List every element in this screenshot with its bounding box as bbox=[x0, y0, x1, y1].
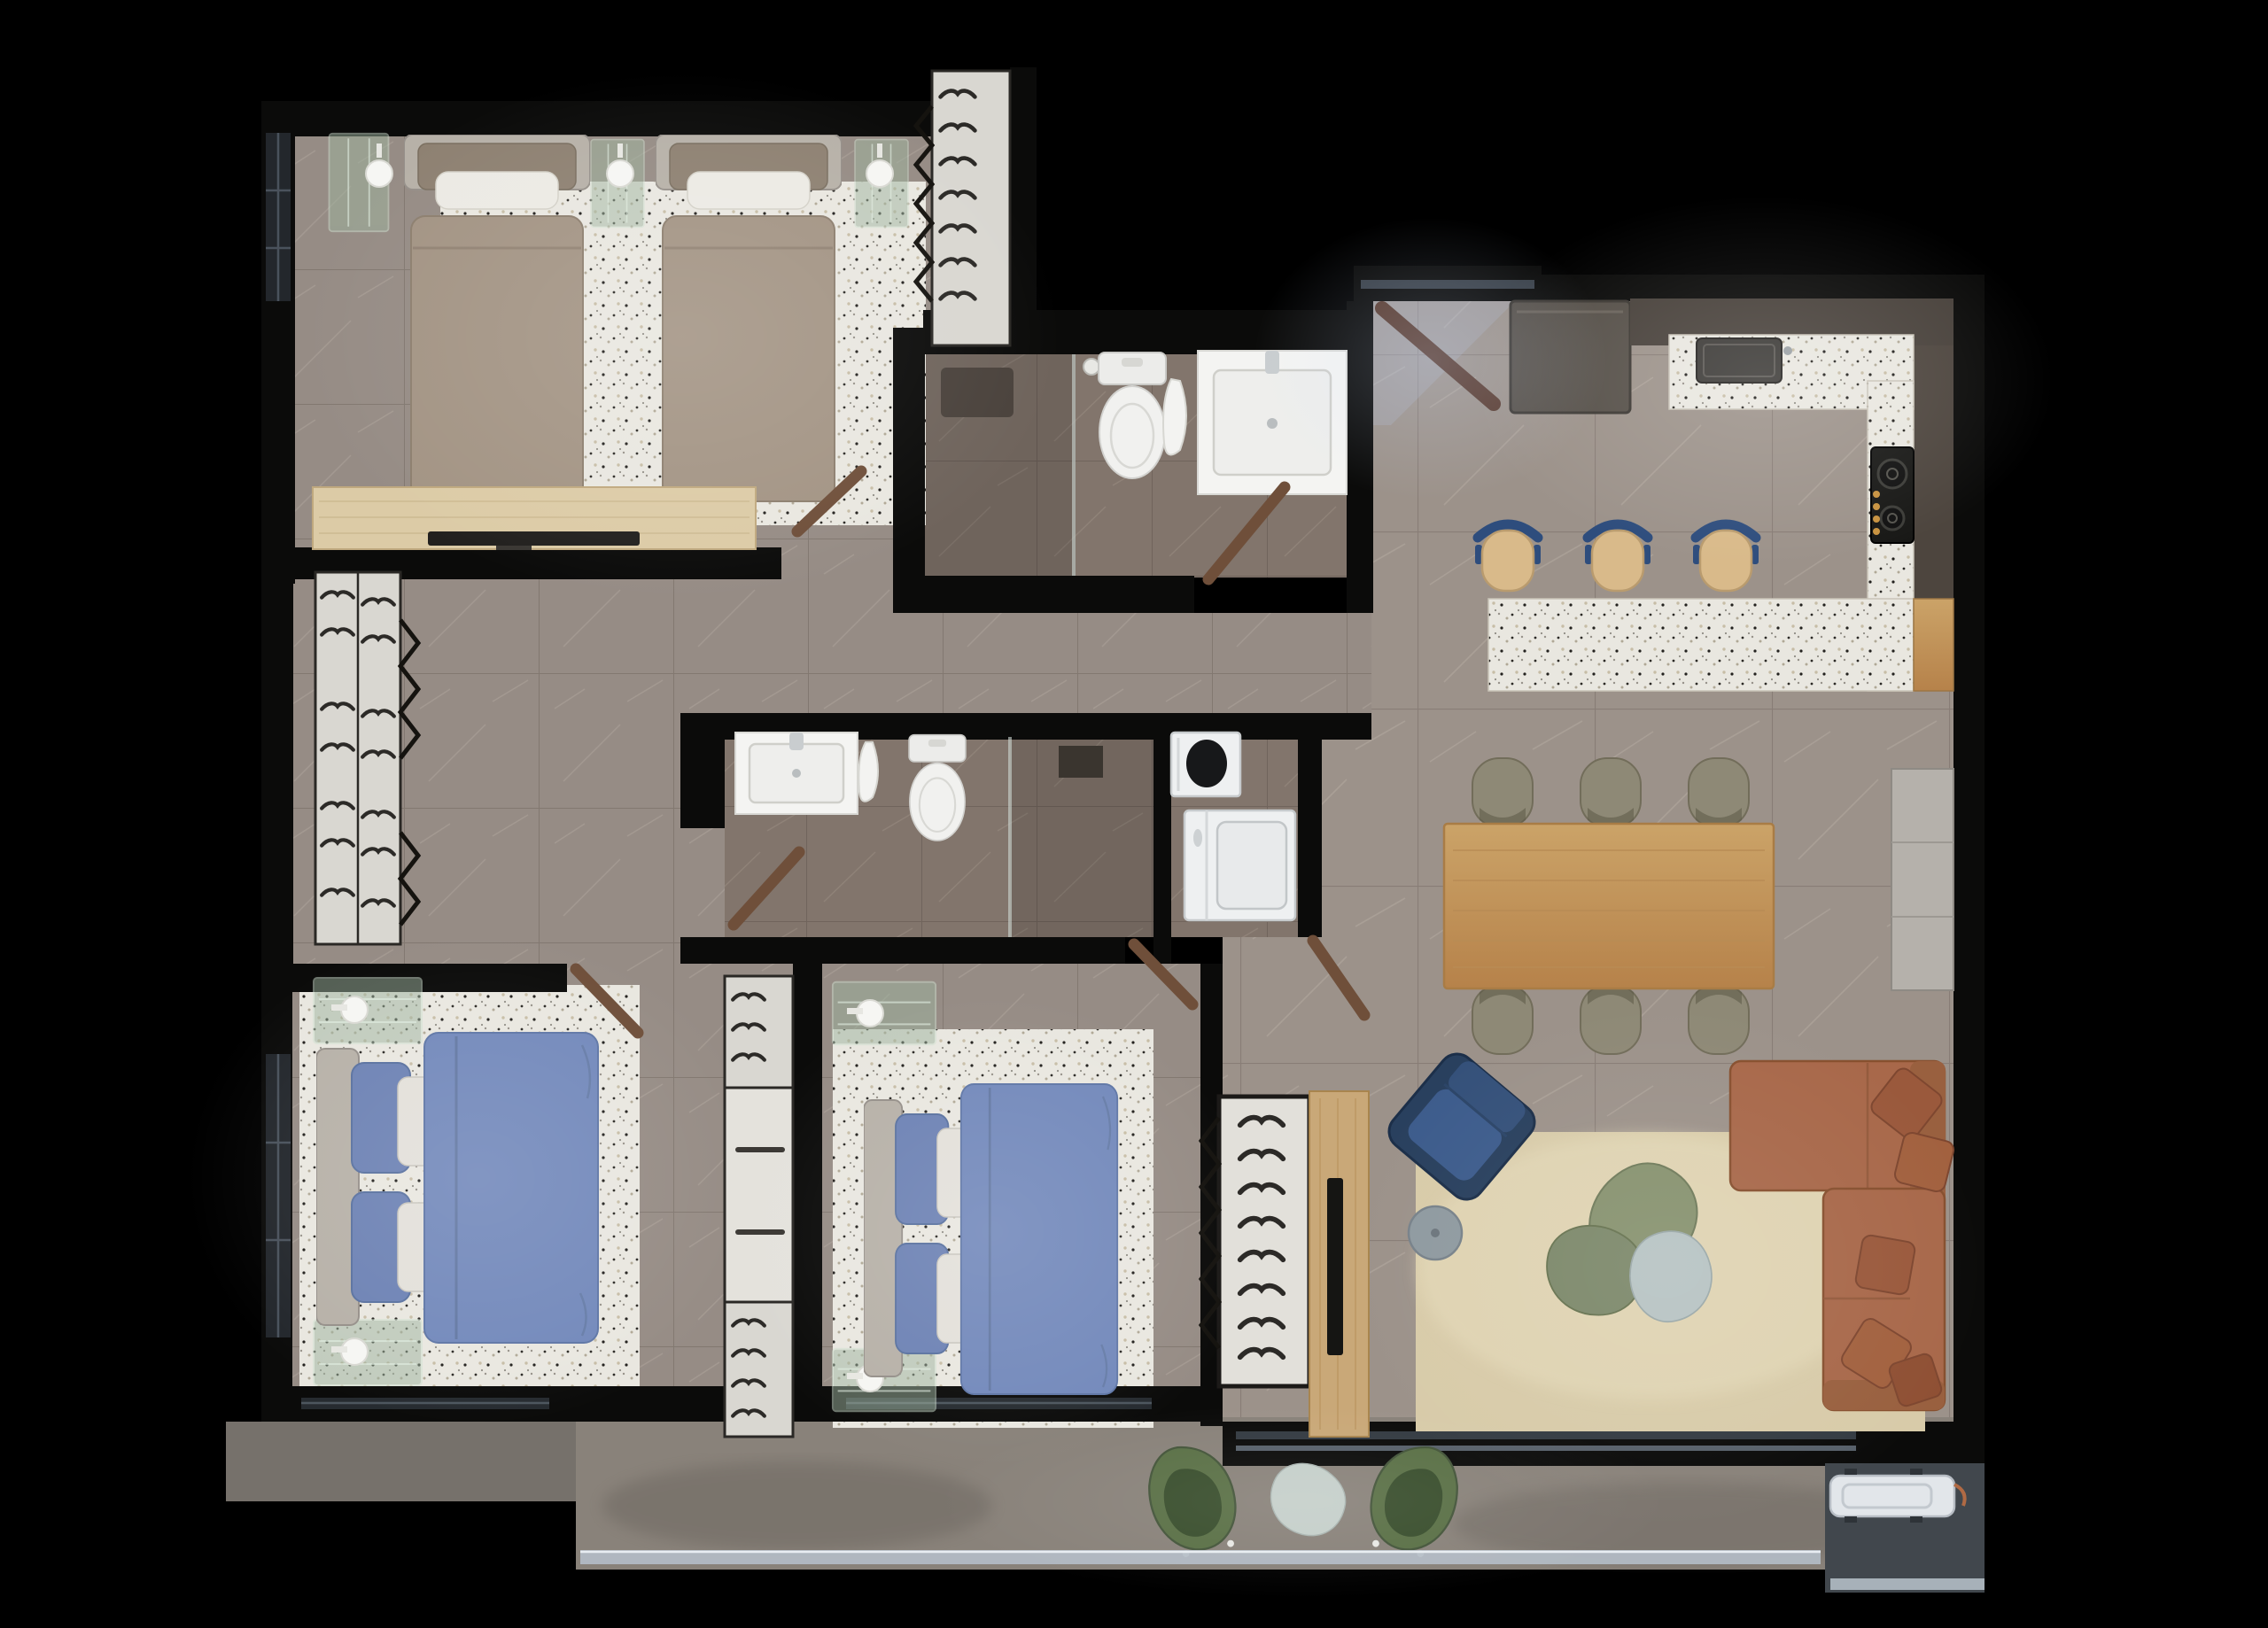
shower-drain bbox=[1084, 359, 1099, 375]
toilet-brush-holder bbox=[1163, 379, 1186, 454]
sideboard bbox=[1891, 769, 1953, 990]
wall-laundry-right bbox=[1298, 737, 1322, 937]
ledge-glass-railing bbox=[1830, 1578, 1984, 1590]
bar-stool bbox=[1475, 524, 1541, 591]
dining-chair bbox=[1472, 758, 1533, 827]
floor-plan-render bbox=[0, 0, 2268, 1628]
washer-handle bbox=[1193, 829, 1202, 847]
washer-lid bbox=[1217, 822, 1286, 909]
floor-plan-stage bbox=[0, 0, 2268, 1628]
counter-peninsula bbox=[1488, 599, 1914, 691]
wall-bathroom-2-left bbox=[680, 713, 725, 828]
vanity-sink bbox=[735, 733, 858, 814]
washing-machine-top-load bbox=[1171, 733, 1240, 796]
wall-hall-left bbox=[261, 576, 293, 979]
washing-machine-front-load bbox=[1184, 810, 1295, 920]
window-ledge-slab bbox=[226, 1422, 576, 1501]
wall-bathroom-1-bottom bbox=[893, 576, 1194, 613]
dining-chair bbox=[1689, 758, 1749, 827]
wall-bathroom-2-bottom bbox=[680, 937, 1125, 964]
dining-table bbox=[1444, 824, 1774, 988]
corridor-floor bbox=[893, 613, 1371, 717]
wall-shower-laundry-divider bbox=[1153, 737, 1171, 964]
kitchen-wood-cabinet-end bbox=[1914, 599, 1953, 691]
dining-chair bbox=[1581, 758, 1641, 827]
toilet-brush-holder bbox=[858, 742, 878, 802]
sink-faucet-icon bbox=[789, 733, 804, 750]
toilet bbox=[1099, 353, 1166, 478]
sink-drain bbox=[792, 769, 801, 778]
shower-head-overhead bbox=[1059, 746, 1103, 778]
toilet bbox=[909, 735, 966, 841]
wall-tv bbox=[1327, 1178, 1343, 1355]
